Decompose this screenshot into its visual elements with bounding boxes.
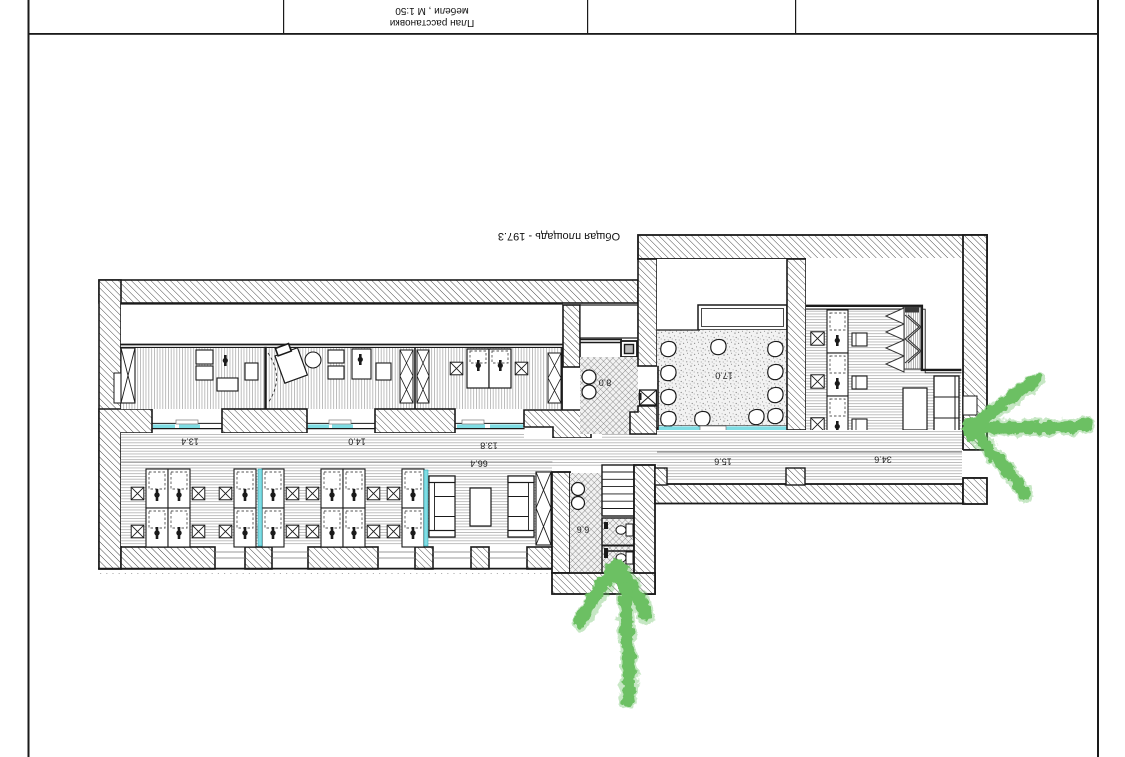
svg-text:17.0: 17.0 [715,371,733,381]
svg-text:План расстановки: План расстановки [390,17,474,28]
svg-text:13.8: 13.8 [480,441,498,451]
svg-text:6.6: 6.6 [577,525,590,535]
svg-text:мебели , М 1:50: мебели , М 1:50 [395,5,469,17]
svg-text:8.0: 8.0 [599,378,612,388]
svg-text:Общая площадь - 197.3: Общая площадь - 197.3 [498,230,620,242]
svg-text:15.6: 15.6 [714,457,732,467]
svg-text:34.6: 34.6 [874,455,892,465]
svg-text:14.0: 14.0 [348,437,366,447]
svg-text:13.4: 13.4 [181,437,199,447]
svg-text:66.4: 66.4 [470,459,488,469]
